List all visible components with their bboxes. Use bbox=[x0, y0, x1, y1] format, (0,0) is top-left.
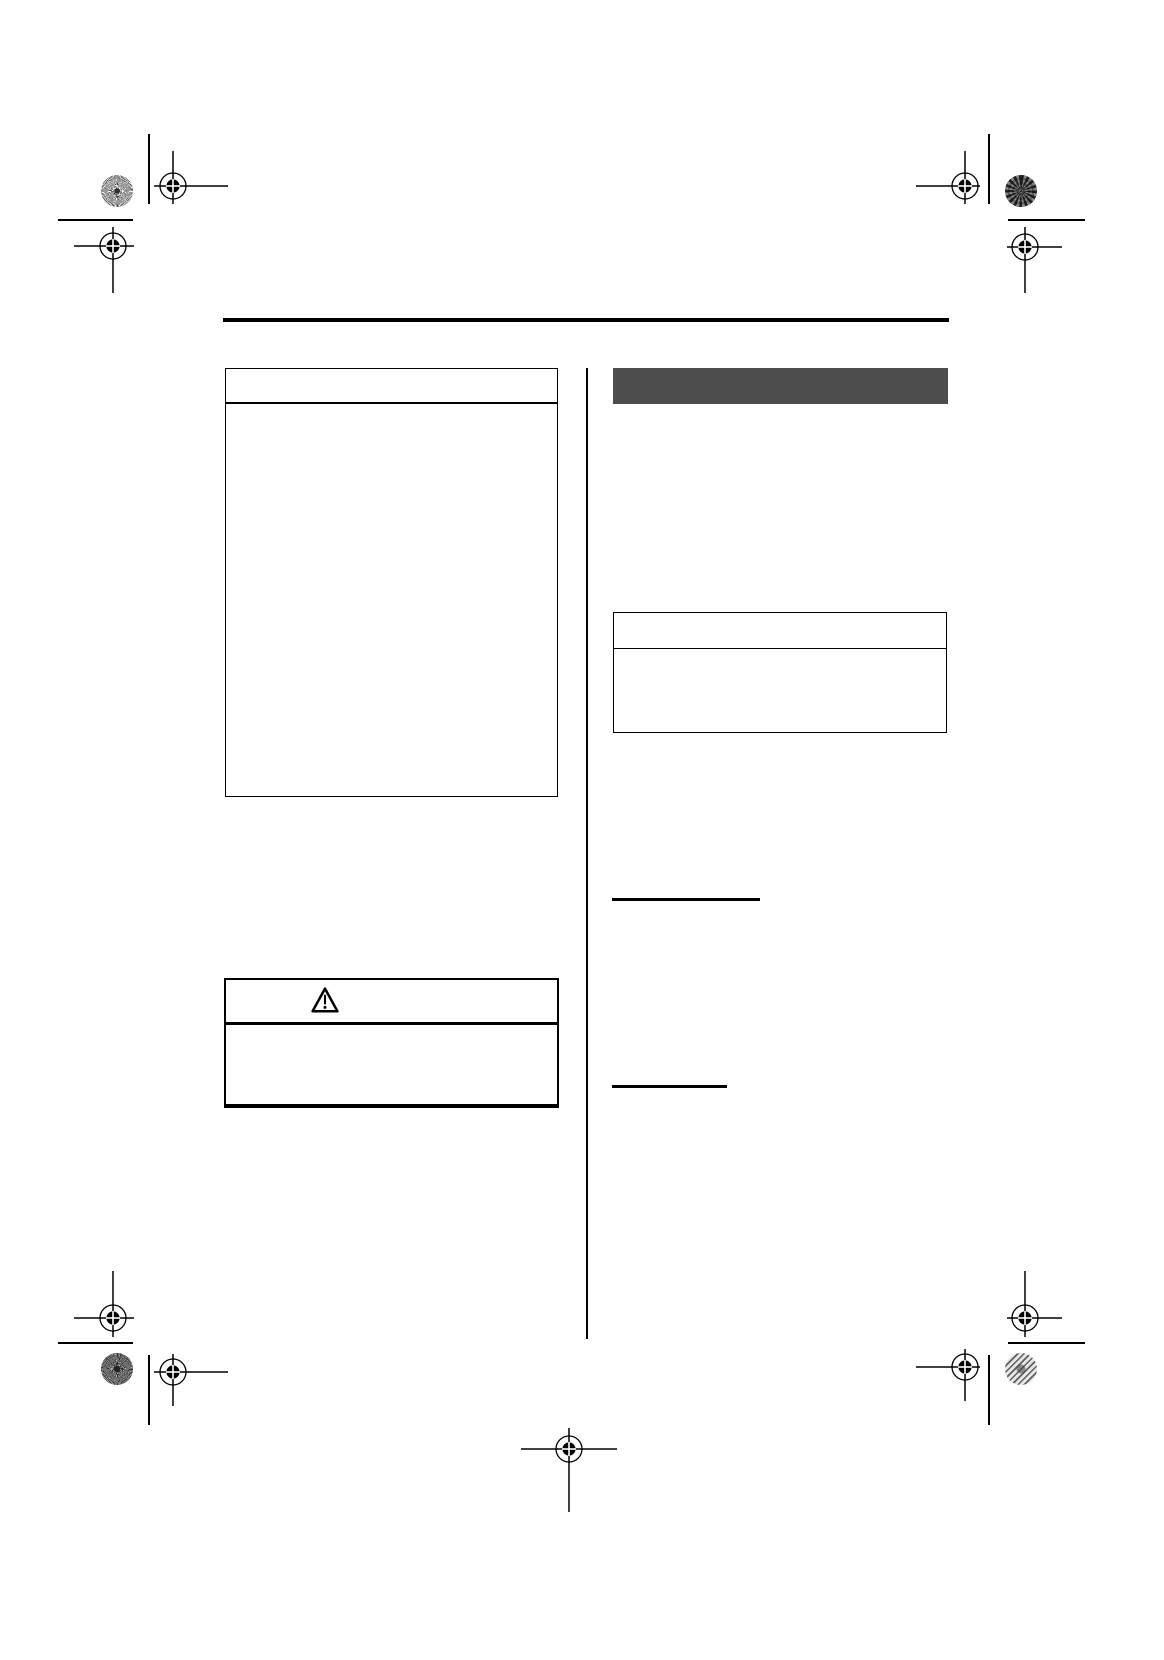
fill-line-2 bbox=[612, 1085, 727, 1088]
calibration-patch-top-right bbox=[1005, 175, 1037, 207]
trim-line-bottom-left-horizontal bbox=[58, 1342, 133, 1344]
info-box-header bbox=[614, 613, 946, 649]
reg-target-top-left-lower bbox=[74, 227, 134, 293]
note-box-header bbox=[226, 369, 557, 404]
calibration-patch-bottom-left bbox=[101, 1353, 133, 1385]
trim-line-top-left-horizontal bbox=[58, 219, 133, 221]
page-top-rule bbox=[223, 318, 949, 322]
trim-line-bottom-right-vertical bbox=[988, 1355, 990, 1425]
page bbox=[0, 0, 1164, 1660]
section-header-bar bbox=[613, 368, 948, 404]
warning-box-header bbox=[226, 980, 557, 1025]
column-divider bbox=[586, 368, 588, 1339]
trim-line-bottom-left-vertical bbox=[148, 1355, 150, 1425]
trim-line-top-right-vertical bbox=[988, 134, 990, 204]
reg-target-bottom-left-lower bbox=[154, 1354, 228, 1406]
reg-target-bottom-center bbox=[521, 1428, 617, 1512]
trim-line-top-left-vertical bbox=[148, 134, 150, 204]
trim-line-top-right-horizontal bbox=[1008, 219, 1085, 221]
fill-line-1 bbox=[612, 898, 760, 901]
reg-target-top-right-lower bbox=[1007, 227, 1062, 293]
reg-target-top-left-upper bbox=[154, 151, 228, 204]
reg-target-bottom-right-upper bbox=[1007, 1271, 1062, 1337]
calibration-patch-bottom-right bbox=[1005, 1353, 1037, 1385]
warning-box bbox=[224, 978, 559, 1108]
reg-target-top-right-upper bbox=[916, 151, 980, 204]
info-box bbox=[613, 612, 947, 733]
note-box bbox=[225, 368, 558, 797]
trim-line-bottom-right-horizontal bbox=[1008, 1342, 1085, 1344]
calibration-patch-top-left bbox=[101, 175, 133, 207]
reg-target-bottom-left-upper bbox=[74, 1271, 134, 1337]
reg-target-bottom-right-lower bbox=[916, 1349, 980, 1401]
warning-triangle-icon bbox=[310, 986, 340, 1014]
